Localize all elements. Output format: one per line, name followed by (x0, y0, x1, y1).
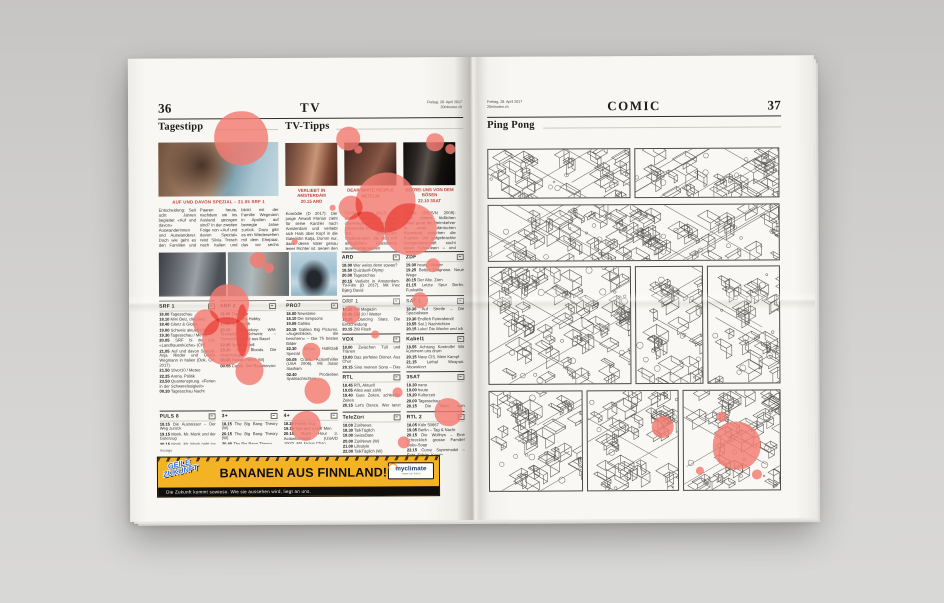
listing-entry: 20.40 The Big Bang Theory (222, 442, 278, 444)
channel-name: SRF 2 (220, 303, 236, 309)
tagestipp-kicker: AUF UND DAVON SPEZIAL – 21.05 SRF 1 (159, 199, 279, 205)
channel-box: VOX18.00 Zwischen Tüll und Tränen19.00 D… (342, 333, 400, 368)
listing-entry: 00.55 Castle. Der Raubtierzoo (220, 364, 276, 369)
channel-entries: 18.05 Top Gear19.00 Rock my Hobby20.00 S… (220, 311, 276, 369)
channel-box-4plus: 4+18.20 Family Guy19.15 Two and a Half M… (284, 410, 338, 443)
listing-entry: 18.30 Auf Streife – Die Spezialisten (406, 307, 464, 317)
channel-header: 3SAT (406, 372, 464, 382)
dateline-left: Freitag, 28. April 2017 20minuten.ch (427, 100, 462, 109)
channel-name: ARD (342, 254, 354, 260)
listing-entry: 20.15 Die Wollnys – Eine schrecklich gro… (407, 433, 465, 448)
channel-header: VOX (342, 334, 400, 344)
channel-name: 3SAT (406, 374, 420, 380)
channel-header: ZDF (406, 252, 464, 262)
rule (543, 126, 781, 128)
newspaper-spread: 36 TV Freitag, 28. April 2017 20minuten.… (128, 55, 816, 522)
channel-name: RTL 2 (407, 414, 422, 420)
channel-entries: 18.15 The Big Bang Theory (W)20.15 The B… (222, 421, 278, 445)
channel-header: ORF 1 (342, 296, 400, 306)
channel-header: 3+ (222, 411, 278, 421)
page-left-tv: 36 TV Freitag, 28. April 2017 20minuten.… (128, 57, 472, 522)
tvtipp-title-3: BEFREI UNS VON DEM BÖSEN 22.10 3SAT (403, 187, 455, 208)
channel-header: ARD (342, 252, 400, 262)
page-right-comic: Freitag, 28. April 2017 20minuten.ch COM… (470, 55, 816, 520)
channel-entries: 18.05 Köln 5066719.05 Berlin – Tag & Nac… (407, 422, 465, 456)
channel-logo-icon (209, 413, 216, 419)
arc-icon (388, 463, 398, 469)
comic-panel (634, 147, 779, 198)
channel-entries: 18.20 Family Guy19.15 Two and a Half Men… (284, 420, 338, 444)
channel-header: RTL (342, 372, 400, 382)
listing-entry: 20.15 Monk. Mr. Monk geht ins Gefängnis (160, 442, 216, 444)
tvtipps-heading: TV-Tipps (285, 121, 329, 132)
channel-name: RTL (342, 374, 353, 380)
channel-box: ZDF19.00 heute / Wetter19.25 Bettys Diag… (406, 251, 464, 292)
myclimate-tagline: shape our future (389, 472, 433, 475)
tagestipp-heading: Tagestipp (158, 121, 203, 132)
comic-panel (683, 389, 782, 491)
channel-name: Kabel1 (406, 336, 424, 342)
channel-box: PRO718.00 Newstime18.10 Die Simpsons19.0… (286, 300, 339, 409)
comic-panel (635, 266, 704, 384)
channel-entries: 18.45 RTL Aktuell19.05 Alles was zählt19… (342, 382, 400, 409)
channel-logo-icon (458, 414, 465, 420)
listing-entry: 20.10 Eishockey: WM-Testspiel Schweiz – … (220, 328, 276, 343)
ad-label: Anzeige (160, 449, 172, 453)
ad-headline: BANANEN AUS FINNLAND! (216, 465, 391, 480)
listing-entry: 20.15 Die Toten vom Bodensee. Krimi (D/A… (407, 404, 465, 408)
channel-logo-icon (457, 336, 464, 342)
channel-logo-icon (271, 413, 278, 419)
channel-box: ORF 118.30 ZIB Magazin18.40 ZIB 20 / Wet… (342, 295, 400, 330)
channel-header: 4+ (284, 411, 338, 421)
channel-entries: 18.00 Wer weiss denn sowas?18.50 Quizdue… (342, 262, 400, 293)
listing-entry: 18.55 Achtung Kontrolle! Wir kümmern uns… (406, 345, 464, 355)
tvtipp-title-text: VERLIEBT IN AMSTERDAM (297, 188, 326, 198)
channel-column-srf1: SRF 118.00 Tagesschau18.10 Mini Beiz, di… (159, 300, 216, 408)
channel-header: Kabel1 (406, 334, 464, 344)
header-rule (158, 117, 463, 120)
channel-entries: 18.30 Auf Streife – Die Spezialisten19.3… (406, 306, 464, 331)
section-title-tv: TV (158, 99, 463, 117)
channel-box-puls8: PULS 818.15 Die Ausreisser – Der Weg zur… (160, 410, 216, 443)
ad-subline: Die Zukunft kommt sowieso. Wie sie ausse… (158, 486, 439, 496)
tvtipp-title-text: BEFREI UNS VON DEM BÖSEN (405, 187, 453, 197)
channel-box: RTL18.45 RTL Aktuell19.05 Alles was zähl… (342, 371, 400, 408)
listing-entry: 20.15 Luke! Die Woche und ich (406, 328, 464, 331)
channel-name: 3+ (222, 413, 228, 419)
channel-name: PULS 8 (160, 413, 179, 419)
listing-entry: 20.15 Rush Hour 3. Actionkomödie (USA/D … (284, 432, 338, 444)
listing-entry: 21.05 Auf und davon Spezial. Anja Rieder… (159, 349, 215, 368)
channel-header: SRF 2 (220, 301, 276, 311)
channel-name: 4+ (284, 412, 290, 418)
section-title-comic: COMIC (487, 97, 781, 115)
channel-entries: 18.00 Zwischen Tüll und Tränen19.00 Das … (342, 344, 400, 369)
comic-panel (489, 390, 584, 491)
channel-logo-icon (457, 298, 464, 304)
listing-entry: 00.20 Tagesschau Nacht (160, 390, 216, 395)
tvtipp-slot: 22.10 3SAT (404, 198, 456, 203)
channel-logo-icon (269, 303, 276, 309)
channel-box: SAT.118.30 Auf Streife – Die Spezialiste… (406, 295, 464, 330)
channel-logo-icon (393, 336, 400, 342)
channel-header: RTL 2 (407, 412, 465, 422)
comic-title: Ping Pong (487, 120, 535, 131)
channel-entries: 19.00 heute / Wetter19.25 Bettys Diagnos… (406, 262, 464, 293)
channel-box: ARD18.00 Wer weiss denn sowas?18.50 Quiz… (342, 251, 400, 292)
tvtipp-body-1: Komödie (D 2017): Der junge Anwalt Flori… (286, 211, 338, 250)
listing-entry: 21.15 Letzte Spur Berlin. Funkstille (406, 284, 464, 293)
listing-entry: 20.05 SRF bi de Lüt. «Landfrauenküche» (… (159, 339, 215, 349)
channel-logo-icon (394, 414, 401, 420)
channel-box: SRF 218.05 Top Gear19.00 Rock my Hobby20… (220, 300, 277, 409)
listing-entry: 00.05 Crank. Actionthriller (USA 2006). … (286, 357, 338, 372)
channel-box: TeleZüri18.00 ZüriNews18.30 TalkTäglich1… (343, 411, 401, 455)
tagestipp-body: Entscheidung: Seit acht Jahren begleitet… (159, 207, 279, 251)
newspaper-spread-photo: 36 TV Freitag, 28. April 2017 20minuten.… (0, 0, 944, 603)
listing-photo-1 (159, 252, 226, 296)
listing-photo-3 (291, 252, 337, 296)
channel-entries: 18.00 Tagesschau18.10 Mini Beiz, dini Be… (159, 311, 215, 395)
channel-entries: 18.00 Newstime18.10 Die Simpsons19.05 Ga… (286, 310, 338, 382)
listing-entry: 22.30 Circus HalliGalli Spezial (286, 347, 338, 357)
comic-grid (470, 55, 814, 57)
channel-box: SRF 118.00 Tagesschau18.10 Mini Beiz, di… (159, 300, 216, 409)
channel-box: 4+18.20 Family Guy19.15 Two and a Half M… (284, 410, 338, 444)
listing-entry: 20.15 Galileo Big Pictures. «Augenblicke… (286, 327, 338, 346)
channel-logo-icon (331, 302, 338, 308)
channel-entries: 18.00 ZüriNews18.30 TalkTäglich19.00 Swi… (343, 422, 401, 456)
tvtipp-title-1: VERLIEBT IN AMSTERDAM 20.15 ARD (285, 188, 337, 209)
listing-entry: 20.15 Let's Dance. Wer tanzt mit wem? Di… (343, 404, 401, 409)
comic-panel (487, 148, 630, 199)
channel-box: Kabel118.55 Achtung Kontrolle! Wir kümme… (406, 333, 464, 368)
channel-name: SAT.1 (406, 298, 421, 304)
listing-entry: 21.15 Lethal Weapon. Abgestürzt (406, 360, 464, 368)
channel-box: 3SAT18.30 nano19.00 heute19.20 Kulturzei… (406, 371, 464, 408)
channel-header: SRF 1 (159, 301, 215, 311)
listing-photo-2 (228, 252, 289, 296)
comic-panel (488, 266, 632, 385)
channel-box-3plus: 3+18.15 The Big Bang Theory (W)20.15 The… (222, 410, 278, 443)
tvtipp-title-2: DEAR WHITE PEOPLE NETFLIX (344, 187, 396, 208)
channel-entries: 18.55 Achtung Kontrolle! Wir kümmern uns… (406, 344, 464, 369)
channel-entries: 18.15 Die Ausreisser – Der Weg zurück19.… (160, 421, 216, 445)
channel-logo-icon (393, 374, 400, 380)
channel-entries: 18.30 ZIB Magazin18.40 ZIB 20 / Wetter19… (342, 306, 400, 331)
channel-column-srf2: SRF 218.05 Top Gear19.00 Rock my Hobby20… (220, 300, 277, 408)
listing-entry: 02.40 ProSieben Spätnachrichten (286, 372, 338, 382)
listing-entry: 20.15 Sing meinen Song – Das Tauschkonze… (342, 365, 400, 368)
channel-logo-icon (331, 412, 338, 418)
channel-grid: ARD18.00 Wer weiss denn sowas?18.50 Quiz… (342, 251, 465, 455)
channel-header: PRO7 (286, 301, 338, 311)
comic-panel (587, 390, 680, 491)
tvtipp-slot: 20.15 ARD (286, 199, 338, 204)
tvtipp-body-2: TV-Serie (USA 2017): Vor dem Hintergrund… (345, 210, 397, 249)
comic-panel (707, 265, 781, 383)
channel-logo-icon (393, 254, 400, 260)
listing-entry: 18.15 The Big Bang Theory (W) (222, 422, 278, 432)
channel-box: 3+18.15 The Big Bang Theory (W)20.15 The… (222, 410, 278, 444)
page-number-right: 37 (767, 97, 781, 113)
channel-logo-icon (393, 298, 400, 304)
listing-entry: 18.00 Zwischen Tüll und Tränen (342, 345, 400, 355)
channel-name: ORF 1 (342, 298, 358, 304)
tvtipp-photo-1 (285, 143, 337, 186)
comic-panel (488, 203, 780, 262)
listing-entry: 20.15 Verliebt in Amsterdam. TV-Film (D … (342, 279, 400, 293)
channel-box: PULS 818.15 Die Ausreisser – Der Weg zur… (160, 410, 216, 444)
channel-logo-icon (457, 374, 464, 380)
channel-name: ZDF (406, 254, 417, 260)
rule (216, 129, 278, 130)
rule (336, 128, 463, 130)
channel-column-pro7: PRO718.00 Newstime18.10 Die Simpsons19.0… (286, 300, 339, 408)
channel-header: TeleZüri (343, 412, 401, 422)
tvtipp-slot: NETFLIX (345, 194, 397, 199)
myclimate-wordmark: myclimate (389, 465, 433, 472)
header-rule (487, 115, 781, 118)
ad-banner[interactable]: GEILE ZUKUNFT BANANEN AUS FINNLAND! mycl… (157, 455, 440, 497)
channel-logo-icon (208, 303, 215, 309)
channel-entries: 18.30 nano19.00 heute19.20 Kulturzeit20.… (406, 382, 464, 409)
myclimate-logo: myclimate shape our future (388, 462, 434, 479)
channel-logo-icon (457, 254, 464, 260)
channel-header: SAT.1 (406, 296, 464, 306)
tvtipp-body-3: Thriller (DK/S/N 2009): Nach einem tödli… (404, 210, 456, 249)
channel-name: PRO7 (286, 302, 301, 308)
channel-name: VOX (342, 336, 354, 342)
tagestipp-photo (158, 142, 278, 197)
listing-entry: 20.15 ZIB Flash (342, 328, 400, 331)
listing-entry: 18.15 Die Ausreisser – Der Weg zurück (160, 422, 216, 432)
ad-graffiti-logo: GEILE ZUKUNFT (161, 457, 199, 478)
tvtipp-photo-2 (344, 142, 396, 185)
channel-name: SRF 1 (159, 303, 175, 309)
channel-header: PULS 8 (160, 411, 216, 421)
site-text: 20minuten.ch (427, 105, 462, 110)
tvtipp-title-text: DEAR WHITE PEOPLE (347, 187, 394, 192)
channel-box: RTL 218.05 Köln 5066719.05 Berlin – Tag … (407, 411, 465, 455)
tvtipp-photo-3 (403, 142, 455, 185)
channel-name: TeleZüri (343, 414, 365, 420)
